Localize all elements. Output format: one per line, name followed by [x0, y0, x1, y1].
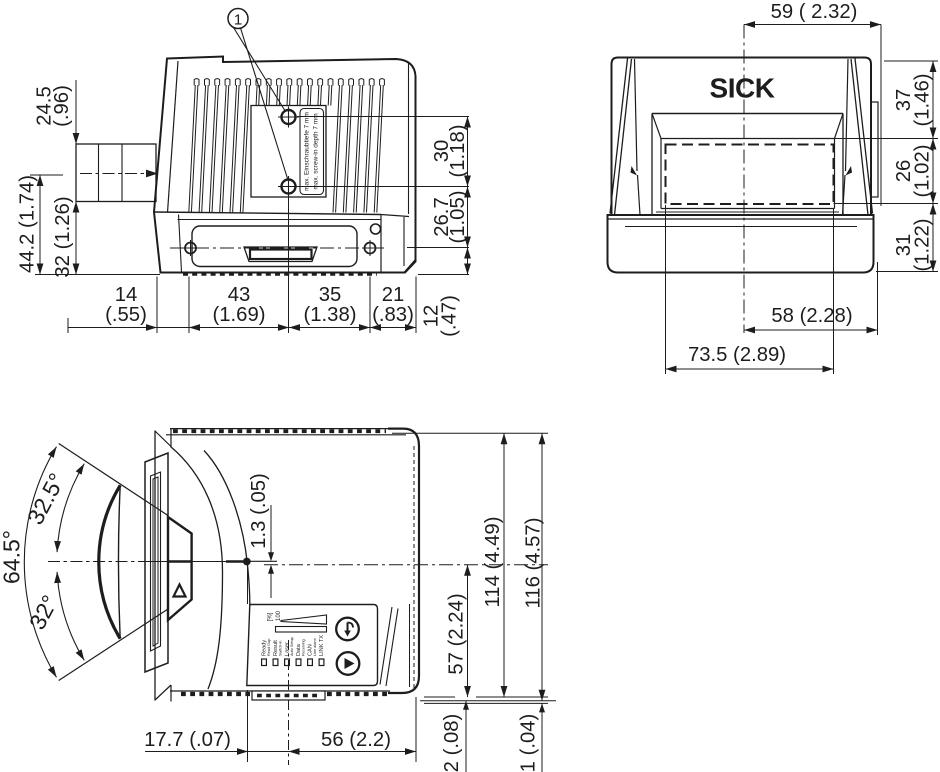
svg-text:Auto Setup: Auto Setup: [290, 637, 294, 656]
svg-text:(1.69): (1.69): [213, 304, 266, 326]
svg-text:max. Einschraubtiefe 7 mm: max. Einschraubtiefe 7 mm: [304, 112, 311, 191]
svg-text:14: 14: [115, 284, 138, 306]
svg-text:(.55): (.55): [105, 304, 147, 326]
svg-text:[%]: [%]: [268, 612, 274, 621]
svg-text:32.5°: 32.5°: [22, 469, 70, 529]
svg-text:(1.22): (1.22): [912, 219, 934, 272]
svg-text:32 (1.26): 32 (1.26): [52, 196, 74, 277]
svg-text:1: 1: [234, 12, 242, 29]
svg-text:44.2 (1.74): 44.2 (1.74): [17, 175, 39, 273]
svg-text:73.5 (2.89): 73.5 (2.89): [688, 344, 786, 366]
svg-text:SICK: SICK: [710, 73, 775, 104]
svg-text:17.7 (.07): 17.7 (.07): [144, 729, 231, 751]
svg-text:114 (4.49): 114 (4.49): [482, 517, 504, 608]
svg-text:2 (.08): 2 (.08): [441, 714, 463, 772]
svg-text:(1.38): (1.38): [304, 304, 357, 326]
svg-text:116 (4.57): 116 (4.57): [523, 518, 545, 609]
svg-text:max. screw-in depth 7 mm: max. screw-in depth 7 mm: [313, 113, 320, 189]
svg-text:(.83): (.83): [372, 304, 414, 326]
svg-text:(.47): (.47): [439, 295, 461, 337]
svg-text:57 (2.24): 57 (2.24): [446, 593, 468, 674]
svg-text:100: 100: [276, 610, 282, 621]
svg-text:35: 35: [319, 284, 342, 306]
svg-text:Receiving: Receiving: [302, 639, 306, 656]
svg-text:(1.18): (1.18): [447, 125, 469, 178]
svg-text:(1.02): (1.02): [912, 145, 934, 198]
svg-text:64.5°: 64.5°: [0, 530, 25, 584]
svg-text:56 (2.2): 56 (2.2): [321, 729, 391, 751]
svg-text:(.96): (.96): [51, 85, 73, 127]
svg-text:43: 43: [228, 284, 251, 306]
svg-text:(1.05): (1.05): [447, 191, 469, 244]
svg-text:(1.46): (1.46): [912, 74, 934, 127]
svg-text:1 (.04): 1 (.04): [518, 714, 540, 772]
svg-text:1.3 (.05): 1.3 (.05): [248, 473, 270, 549]
svg-text:Read Gap: Read Gap: [267, 639, 271, 656]
svg-text:32°: 32°: [24, 591, 63, 634]
svg-text:58 (2.28): 58 (2.28): [771, 305, 852, 327]
svg-text:LINK TX: LINK TX: [319, 635, 325, 656]
svg-text:Switch-in: Switch-in: [279, 641, 283, 656]
svg-text:21: 21: [382, 284, 405, 306]
svg-text:59 ( 2.32): 59 ( 2.32): [771, 1, 858, 23]
svg-text:Line alarm: Line alarm: [313, 638, 317, 656]
